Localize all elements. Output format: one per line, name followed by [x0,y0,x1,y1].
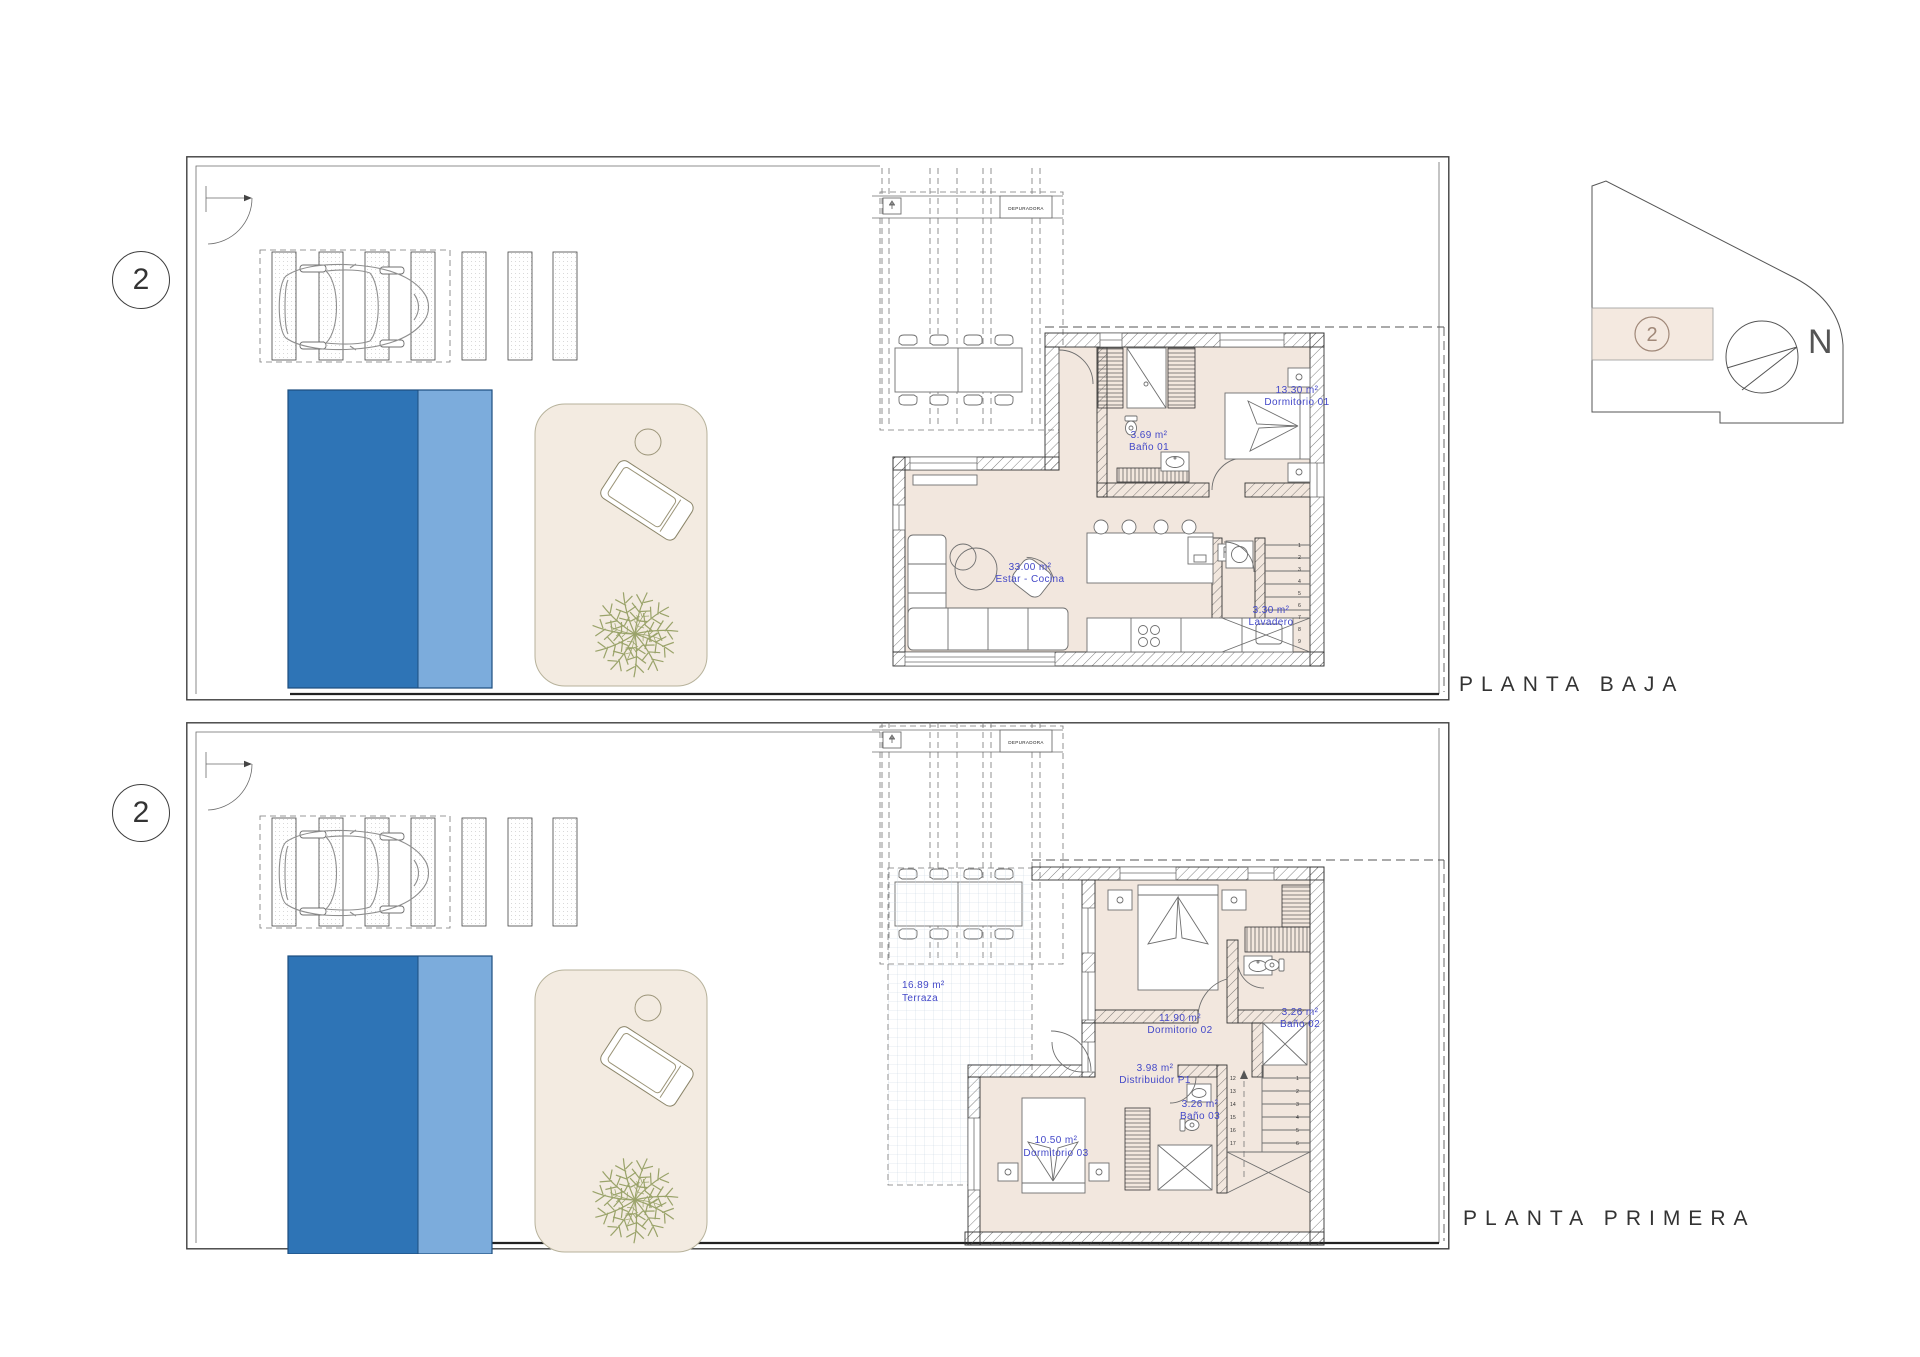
wardrobe [1098,348,1123,408]
stair-step-number: 2 [1296,1089,1299,1095]
stool [1094,520,1108,534]
room-name: Distribuidor P1 [1119,1075,1191,1086]
room-area: 11.90 m² [1159,1013,1201,1024]
room-name: Lavadero [1249,617,1294,628]
unit-number: 2 [133,263,150,297]
stair-step-number: 15 [1230,1115,1236,1121]
shower-icon [1127,348,1166,408]
house-first-floor: 1 2 3 4 5 6 12 13 14 15 16 17 16.89 m² T… [888,867,1324,1245]
room-area: 3.26 m² [1182,1099,1219,1110]
wardrobe [1245,927,1310,952]
plan-planta-primera: 1 2 3 4 5 6 12 13 14 15 16 17 16.89 m² T… [186,722,1450,1254]
stair-step-number: 16 [1230,1128,1236,1134]
room-name: Dormitorio 01 [1264,397,1329,408]
room-name: Estar - Cocina [996,574,1065,585]
room-label-bano-02: 3.26 m² Baño 02 [1280,1007,1320,1030]
laundry [1224,541,1254,572]
room-area: 3.98 m² [1137,1063,1174,1074]
wardrobe [1282,885,1310,927]
room-area: 33.00 m² [1009,562,1052,573]
nightstand [1222,890,1246,910]
stair-step-number: 8 [1298,627,1301,633]
stair-step-number: 4 [1298,579,1301,585]
wardrobe [1125,1108,1150,1190]
stair-step-number: 1 [1298,543,1301,549]
stair-step-number: 14 [1230,1102,1236,1108]
bench [913,475,977,485]
site-outline [1592,181,1843,423]
nightstand [1108,890,1132,910]
room-area: 3.69 m² [1131,430,1168,441]
stair-step-number: 3 [1296,1102,1299,1108]
north-arrow-icon [1726,321,1798,393]
stair-step-number: 4 [1296,1115,1299,1121]
unit-number-badge-baja: 2 [112,251,170,309]
shower-icon [1158,1145,1212,1190]
stair-step-number: 9 [1298,639,1301,645]
stool [1122,520,1136,534]
room-label-bano-03: 3.26 m² Baño 03 [1180,1099,1220,1122]
stair-step-number: 7 [1298,615,1301,621]
key-plan: 2 N [1580,170,1865,440]
room-name: Terraza [902,993,938,1004]
stair-step-number: 2 [1298,555,1301,561]
title-planta-primera: PLANTA PRIMERA [1463,1207,1756,1231]
room-area: 3.30 m² [1253,605,1290,616]
stair-step-number: 13 [1230,1089,1236,1095]
nightstand [998,1163,1018,1181]
room-area: 16.89 m² [902,980,945,991]
unit-number-badge-primera: 2 [112,784,170,842]
plan-planta-baja: 1 2 3 4 5 6 7 8 9 33.00 m² Estar - Cocin… [186,156,1450,701]
stair-step-number: 6 [1296,1141,1299,1147]
room-name: Dormitorio 02 [1147,1025,1212,1036]
stair-step-number: 12 [1230,1076,1236,1082]
room-name: Baño 01 [1129,442,1169,453]
stool [1154,520,1168,534]
stair-step-number: 6 [1298,603,1301,609]
room-name: Baño 02 [1280,1019,1320,1030]
key-unit-number: 2 [1646,324,1657,346]
floor-plan-sheet: DEPURADORA [0,0,1920,1357]
room-name: Dormitorio 03 [1023,1148,1088,1159]
stool [1182,520,1196,534]
stair-step-number: 5 [1296,1128,1299,1134]
room-area: 13.30 m² [1276,385,1319,396]
title-planta-baja: PLANTA BAJA [1459,673,1684,697]
nightstand [1288,463,1310,482]
stair-step-number: 3 [1298,567,1301,573]
nightstand [1089,1163,1109,1181]
room-label-lavadero: 3.30 m² Lavadero [1249,605,1294,628]
stair-step-number: 17 [1230,1141,1236,1147]
wardrobe [1168,348,1195,408]
north-label: N [1808,323,1834,361]
stair-step-number: 5 [1298,591,1301,597]
room-area: 3.26 m² [1282,1007,1319,1018]
room-area: 10.50 m² [1035,1135,1078,1146]
room-label-bano-01: 3.69 m² Baño 01 [1129,430,1169,453]
room-name: Baño 03 [1180,1111,1220,1122]
stair-step-number: 1 [1296,1076,1299,1082]
unit-number: 2 [133,796,150,830]
